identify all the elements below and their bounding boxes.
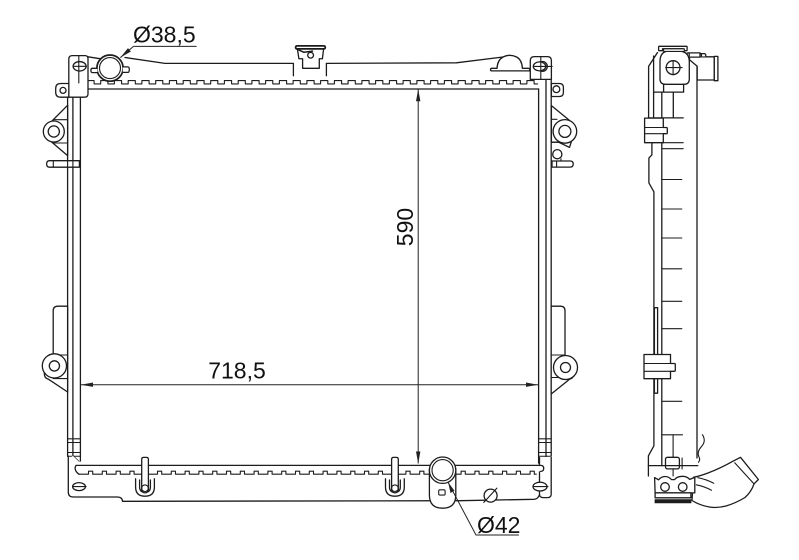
svg-text:590: 590 [392, 208, 418, 246]
svg-text:718,5: 718,5 [208, 358, 266, 384]
svg-text:Ø42: Ø42 [477, 512, 520, 538]
svg-text:Ø38,5: Ø38,5 [133, 22, 196, 48]
